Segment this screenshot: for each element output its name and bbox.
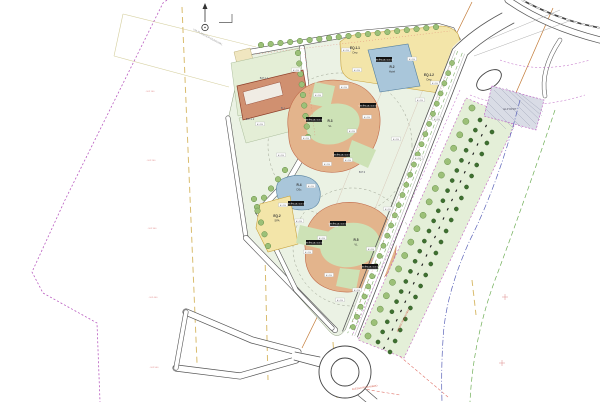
tree-icon	[336, 34, 342, 40]
tree-icon	[419, 142, 424, 147]
area-mini-label: A 1.250	[315, 94, 321, 97]
tree-icon	[365, 31, 371, 37]
area-mini-label: A 1.250	[349, 130, 355, 133]
label-bp12: B.P.1.2	[246, 117, 255, 121]
tree-icon	[394, 28, 400, 34]
area-mini-label: A 1.250	[293, 69, 299, 72]
tree-icon	[426, 199, 432, 205]
tree-icon	[282, 167, 288, 173]
area-mini-label: A 1.250	[278, 154, 284, 157]
tree-icon	[414, 226, 420, 232]
tree-icon	[423, 131, 428, 136]
label-r4-use: DSc	[296, 188, 302, 192]
tree-icon	[296, 61, 302, 67]
tree-icon	[427, 121, 432, 126]
label-b1: B.1	[281, 106, 286, 110]
label-r2-use: Hotel	[389, 70, 396, 74]
tree-icon	[298, 71, 304, 77]
tree-icon	[464, 185, 468, 189]
area-mini-label: A 1.250	[354, 69, 360, 72]
tree-icon	[414, 26, 420, 32]
tree-icon	[394, 300, 398, 304]
cession-label: CEDÊNCIA 2.400 m²	[305, 118, 324, 121]
label-elp: ELP DPRT	[503, 107, 516, 111]
tree-icon	[413, 259, 417, 263]
tree-icon	[408, 269, 412, 273]
tree-icon	[445, 189, 449, 193]
tree-icon	[301, 103, 307, 109]
label-r3-use: VL	[328, 124, 332, 128]
label-r2-code: R.2	[390, 65, 395, 69]
tree-icon	[297, 38, 303, 44]
tree-icon	[464, 148, 468, 152]
tree-icon	[385, 233, 390, 238]
tree-icon	[450, 178, 454, 182]
tree-icon	[399, 289, 403, 293]
tree-icon	[381, 243, 386, 248]
area-mini-label: A 1.250	[326, 274, 332, 277]
area-mini-label: A 1.250	[337, 299, 343, 302]
tree-icon	[392, 213, 397, 218]
area-mini-label: A 1.250	[417, 99, 423, 102]
tree-icon	[381, 330, 385, 334]
label-eq12-use: Dep	[427, 78, 432, 82]
tree-icon	[455, 168, 459, 172]
tree-icon	[362, 294, 367, 299]
tree-icon	[389, 279, 395, 285]
north-dot	[204, 27, 205, 28]
tree-icon	[432, 185, 438, 191]
tree-icon	[478, 118, 482, 122]
tree-icon	[262, 231, 268, 237]
area-mini-label: A 1.250	[296, 220, 302, 223]
tree-icon	[427, 229, 431, 233]
site-plan-map: A 1.250A 1.250A 1.250A 1.250A 1.250A 1.2…	[0, 0, 600, 402]
tree-icon	[268, 41, 274, 47]
label-eq2-code: EQ.2	[273, 214, 280, 218]
label-r5-code: R.5	[354, 238, 359, 242]
tree-icon	[375, 30, 381, 36]
tree-icon	[451, 145, 457, 151]
area-mini-label: A 1.250	[345, 159, 351, 162]
tree-icon	[396, 203, 401, 208]
tree-icon	[438, 91, 443, 96]
tree-icon	[432, 219, 436, 223]
tree-icon	[385, 29, 391, 35]
tree-icon	[469, 105, 475, 111]
tree-icon	[446, 71, 451, 76]
tree-icon	[459, 158, 463, 162]
tree-icon	[400, 192, 405, 197]
tree-icon	[354, 314, 359, 319]
tree-icon	[422, 239, 426, 243]
area-mini-label: A 1.250	[343, 49, 349, 52]
tree-icon	[439, 240, 443, 244]
tree-icon	[404, 182, 409, 187]
tree-icon	[429, 262, 433, 266]
tree-icon	[433, 24, 439, 30]
tree-icon	[304, 124, 310, 130]
area-mini-label: A 1.250	[319, 237, 325, 240]
tree-icon	[355, 32, 361, 38]
tree-icon	[402, 252, 408, 258]
cession-label: CEDÊNCIA 2.400 m²	[329, 222, 348, 225]
tree-icon	[454, 207, 458, 211]
tree-icon	[251, 196, 257, 202]
tree-icon	[346, 33, 352, 39]
r5-green-channel	[336, 268, 360, 290]
tree-icon	[295, 50, 301, 56]
area-mini-label: A 1.250	[415, 157, 421, 160]
tree-icon	[420, 212, 426, 218]
grid-coordinate-label: -102 100	[146, 91, 155, 93]
tree-icon	[413, 295, 417, 299]
tree-icon	[376, 340, 380, 344]
tree-icon	[383, 293, 389, 299]
tree-icon	[366, 284, 371, 289]
tree-icon	[317, 36, 323, 42]
tree-icon	[408, 239, 414, 245]
tree-icon	[377, 306, 383, 312]
tree-icon	[424, 273, 428, 277]
label-bp3: B.P.3	[359, 170, 366, 174]
area-mini-label: A 1.250	[432, 82, 438, 85]
tree-icon	[388, 350, 392, 354]
tree-icon	[438, 172, 444, 178]
area-mini-label: A 1.250	[305, 251, 311, 254]
tree-icon	[490, 130, 494, 134]
area-mini-label: A 1.250	[308, 185, 314, 188]
label-eq12-code: EQ.1.2	[424, 73, 434, 77]
label-eq11-code: EQ.1.1	[350, 46, 360, 50]
label-r5-use: VL	[354, 243, 358, 247]
area-mini-label: A 1.250	[280, 204, 286, 207]
tree-icon	[307, 37, 313, 43]
tree-icon	[485, 141, 489, 145]
tree-icon	[350, 324, 355, 329]
tree-icon	[371, 319, 377, 325]
tree-icon	[442, 81, 447, 86]
tree-icon	[408, 172, 413, 177]
tree-icon	[441, 199, 445, 203]
label-r3-code: R.3	[328, 119, 333, 123]
grid-coordinate-label: -102 300	[148, 228, 157, 230]
cession-label: CEDÊNCIA 2.400 m²	[359, 104, 378, 107]
tree-icon	[469, 138, 473, 142]
tree-icon	[268, 186, 274, 192]
tree-icon	[449, 218, 453, 222]
tree-icon	[358, 304, 363, 309]
tree-icon	[411, 162, 416, 167]
area-mini-label: A 1.250	[368, 248, 374, 251]
plan-drawing: A 1.250A 1.250A 1.250A 1.250A 1.250A 1.2…	[0, 0, 600, 402]
tree-icon	[449, 60, 454, 65]
grid-coordinate-label: -102 500	[150, 367, 159, 369]
tree-icon	[418, 249, 422, 253]
tree-icon	[463, 118, 469, 124]
tree-icon	[255, 208, 261, 214]
tree-icon	[326, 35, 332, 41]
tree-icon	[404, 279, 408, 283]
tree-icon	[369, 274, 374, 279]
cession-label: CEDÊNCIA 2.400 m²	[361, 265, 380, 268]
tree-icon	[404, 27, 410, 33]
tree-icon	[430, 111, 435, 116]
tree-icon	[419, 284, 423, 288]
southwest-exit	[322, 394, 327, 402]
tree-icon	[436, 209, 440, 213]
area-mini-label: A 1.250	[341, 86, 347, 89]
area-mini-label: A 1.250	[409, 58, 415, 61]
tree-icon	[261, 195, 267, 201]
label-r4-code: R.4	[297, 183, 302, 187]
tree-icon	[299, 82, 305, 88]
tree-icon	[393, 339, 397, 343]
tree-icon	[275, 176, 281, 182]
grid-coordinate-label: -102 200	[147, 160, 156, 162]
area-mini-label: A 1.250	[364, 116, 370, 119]
tree-icon	[377, 253, 382, 258]
tree-icon	[278, 40, 284, 46]
tree-icon	[365, 333, 371, 339]
area-mini-label: A 1.250	[434, 118, 440, 121]
tree-icon	[258, 220, 264, 226]
tree-icon	[434, 101, 439, 106]
tree-icon	[388, 223, 393, 228]
tree-icon	[459, 196, 463, 200]
tree-icon	[287, 39, 293, 45]
area-mini-label: A 1.250	[324, 163, 330, 166]
label-eq2-use: SPA	[274, 219, 279, 223]
tree-icon	[457, 132, 463, 138]
label-eq11-use: Dep	[353, 51, 358, 55]
tree-icon	[470, 174, 474, 178]
roundabout-island	[331, 358, 359, 386]
tree-icon	[258, 42, 264, 48]
tree-icon	[473, 128, 477, 132]
tree-icon	[390, 310, 394, 314]
tree-icon	[475, 163, 479, 167]
tree-icon	[265, 243, 271, 249]
tree-icon	[395, 266, 401, 272]
area-mini-label: A 1.250	[303, 137, 309, 140]
area-mini-label: A 1.250	[257, 123, 263, 126]
grid-coordinate-label: -102 400	[149, 297, 158, 299]
tree-icon	[300, 92, 306, 98]
label-bp11: B.P.1.1	[260, 76, 269, 80]
area-mini-label: A 1.250	[393, 138, 399, 141]
cession-label: CEDÊNCIA 2.400 m²	[375, 58, 394, 61]
area-mini-label: A 1.250	[354, 289, 360, 292]
tree-icon	[480, 152, 484, 156]
cession-label: CEDÊNCIA 2.400 m²	[287, 202, 306, 205]
tree-icon	[434, 251, 438, 255]
cession-label: CEDÊNCIA 2.400 m²	[305, 241, 324, 244]
tree-icon	[444, 229, 448, 233]
cession-label: CEDÊNCIA 2.400 m²	[333, 153, 352, 156]
tree-icon	[385, 320, 389, 324]
area-mini-label: A 1.250	[385, 208, 391, 211]
tree-icon	[444, 159, 450, 165]
tree-icon	[423, 25, 429, 31]
